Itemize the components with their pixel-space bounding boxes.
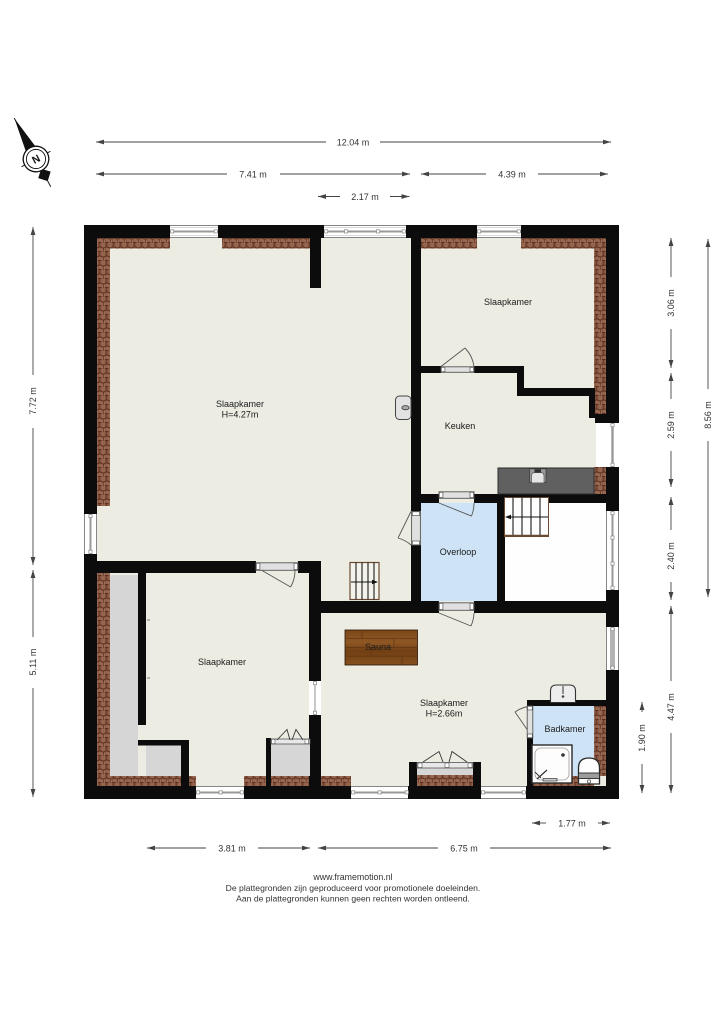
svg-text:1.77 m: 1.77 m <box>558 819 586 829</box>
svg-text:Slaapkamer: Slaapkamer <box>198 657 246 667</box>
svg-text:2.59 m: 2.59 m <box>666 411 676 439</box>
svg-text:3.06 m: 3.06 m <box>666 289 676 317</box>
svg-text:De plattegronden zijn geproduc: De plattegronden zijn geproduceerd voor … <box>226 883 481 893</box>
svg-text:Aan de plattegronden kunnen ge: Aan de plattegronden kunnen geen rechten… <box>236 894 470 904</box>
svg-text:6.75 m: 6.75 m <box>450 844 478 854</box>
svg-text:www.framemotion.nl: www.framemotion.nl <box>312 872 392 882</box>
svg-text:5.11 m: 5.11 m <box>28 649 38 676</box>
svg-text:7.72 m: 7.72 m <box>28 387 38 415</box>
svg-text:4.39 m: 4.39 m <box>498 169 526 179</box>
svg-text:H=4.27m: H=4.27m <box>222 410 259 420</box>
svg-text:Keuken: Keuken <box>445 421 476 431</box>
svg-text:Slaapkamer: Slaapkamer <box>216 399 264 409</box>
svg-text:Slaapkamer: Slaapkamer <box>484 297 532 307</box>
svg-text:1.90 m: 1.90 m <box>637 724 647 752</box>
svg-text:Badkamer: Badkamer <box>544 724 585 734</box>
svg-text:4.47 m: 4.47 m <box>666 693 676 721</box>
svg-text:Slaapkamer: Slaapkamer <box>420 698 468 708</box>
svg-text:2.40 m: 2.40 m <box>666 542 676 570</box>
svg-text:Sauna: Sauna <box>365 642 391 652</box>
svg-text:2.17 m: 2.17 m <box>351 192 379 202</box>
svg-text:8.56 m: 8.56 m <box>703 401 713 429</box>
svg-text:3.81 m: 3.81 m <box>218 844 246 854</box>
svg-text:Overloop: Overloop <box>440 547 477 557</box>
svg-text:12.04 m: 12.04 m <box>337 138 370 148</box>
svg-text:7.41 m: 7.41 m <box>239 169 267 179</box>
svg-text:H=2.66m: H=2.66m <box>426 709 463 719</box>
